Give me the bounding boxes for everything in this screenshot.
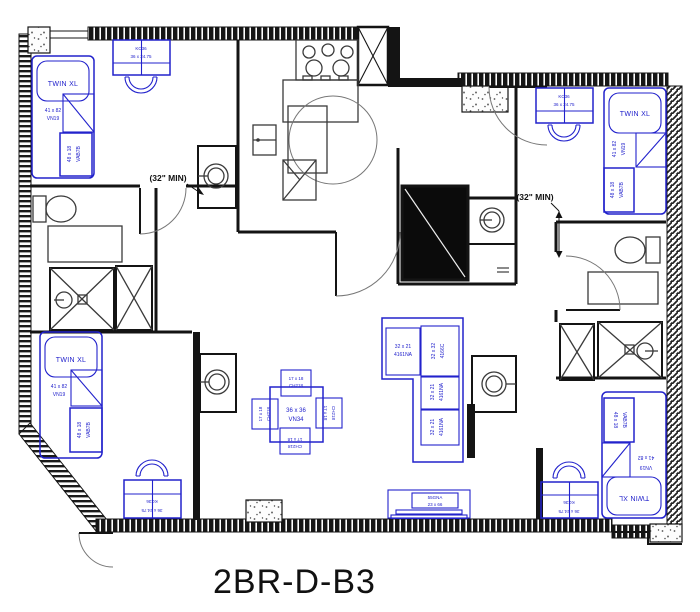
sofa-seat-code-label: 4161NA (394, 352, 413, 358)
chair-size-label: 17 x 18 (323, 406, 328, 421)
column-top-left (28, 27, 50, 53)
sofa-seat-size-label: 32 x 21 (395, 344, 412, 350)
toilet-tank (646, 237, 660, 263)
top-wall-left (88, 27, 358, 40)
right-exterior-wall (667, 86, 682, 538)
dresser-size-label: 48 x 18 (67, 146, 73, 163)
angled-exterior-wall (19, 423, 107, 531)
vanity (48, 226, 122, 262)
bed-code-label: VN19 (640, 464, 653, 470)
chair-size-label: 17 x 18 (258, 406, 263, 421)
burner (322, 44, 334, 56)
sofa-seat-code-label: 4161NA (439, 382, 445, 401)
desk-chair (553, 462, 585, 478)
dining-chair (252, 399, 278, 429)
chair-code-label: CH218 (266, 407, 271, 422)
kitchen-island (288, 106, 327, 173)
toilet-tank (33, 196, 46, 222)
wall-post (388, 27, 400, 85)
dining-set: 36 x 36 VN34 17 x 18 CH218 17 x 18 CH218… (252, 370, 342, 454)
column-top-right (462, 86, 508, 112)
sofa-seat-size-label: 32 x 21 (430, 419, 436, 436)
arrowhead (556, 251, 563, 258)
dresser-code-label: VAB7B (621, 412, 627, 428)
table-size-label: 36 x 36 (286, 408, 306, 414)
column-bottom-right (650, 524, 682, 542)
dresser-code-label: VAB7B (76, 145, 82, 161)
bedroom3-wall (193, 332, 200, 520)
desk-chair (136, 460, 168, 476)
plan-title: 2BR-D-B3 (213, 563, 376, 601)
exterior-walls (19, 27, 682, 544)
bed-label: TWIN XL (56, 357, 87, 364)
top-wall-right (458, 73, 668, 86)
desk-size-label: 36 x 24.75 (553, 102, 575, 107)
dining-chair (316, 398, 342, 428)
sofa-outline (382, 318, 463, 462)
bedroom-1: TWIN XL 41 x 82 VN19 48 x 18 VAB7B KC36 … (32, 40, 170, 178)
left-exterior-wall (19, 34, 31, 434)
desk-size-label: 36 x 24.75 (130, 54, 152, 59)
sofa-seat-code-label: 4161NA (439, 417, 445, 436)
desk-size-label: 36 x 24.75 (558, 509, 580, 514)
bed-label: TWIN XL (48, 81, 79, 88)
sofa-corner-code-label: 4166C (440, 343, 446, 358)
turning-circle (289, 96, 377, 184)
dresser-code-label: VAB7B (86, 421, 92, 437)
floor-plan-drawing: TWIN XL 41 x 82 VN19 48 x 18 VAB7B KC36 … (0, 0, 700, 612)
burner (333, 60, 349, 76)
column-bottom-center (246, 500, 282, 522)
floor-plan-page: TWIN XL 41 x 82 VN19 48 x 18 VAB7B KC36 … (0, 0, 700, 612)
chair-code-label: CH218 (331, 406, 336, 421)
interior-walls (30, 40, 666, 520)
desk-chair (125, 77, 157, 93)
toilet-bowl (615, 237, 645, 263)
clearance-note-left: (32" MIN) (149, 173, 186, 183)
sofa-corner-size-label: 32 x 32 (431, 343, 437, 360)
media-shelf (396, 510, 462, 514)
sofa-seat-size-label: 32 x 21 (430, 384, 436, 401)
toilet-bowl (46, 196, 76, 222)
bottom-exterior-wall (96, 519, 612, 532)
burner (306, 60, 322, 76)
dresser-size-label: 48 x 18 (612, 412, 618, 429)
wall-header (388, 78, 462, 87)
media-size-label: 23 x 66 (428, 502, 443, 507)
dresser-code-label: VAB7B (619, 181, 625, 197)
chair-code-label: CH218 (289, 383, 304, 388)
bed-size-label: 41 x 82 (638, 454, 655, 460)
chair-code-label: CH218 (288, 444, 303, 449)
desk-size-label: 36 x 24.75 (141, 508, 163, 513)
desk-code-label: KC36 (135, 46, 147, 51)
clearance-note-right: (32" MIN) (516, 192, 553, 202)
dresser-size-label: 48 x 18 (77, 422, 83, 439)
bed-code-label: VN19 (621, 143, 627, 156)
mechanical-shaft (402, 186, 468, 280)
desk-code-label: KC36 (146, 499, 158, 504)
bedroom-2: TWIN XL 41 x 82 VN19 48 x 18 VAB7B KC36 … (536, 88, 666, 214)
media-code-label: 55GNA (428, 495, 443, 500)
bed-code-label: VN19 (47, 116, 60, 122)
bed-size-label: 41 x 82 (612, 141, 618, 158)
desk-code-label: KC36 (558, 94, 570, 99)
media-shelf (391, 515, 467, 519)
bathroom-right (560, 237, 662, 380)
burner (303, 46, 315, 58)
kitchen (253, 40, 377, 200)
arrowhead (556, 211, 563, 218)
chair-size-label: 17 x 18 (289, 376, 304, 381)
burner (341, 46, 353, 58)
dresser (604, 398, 634, 442)
vanity (588, 272, 658, 304)
table-code-label: VN34 (288, 417, 304, 423)
desk-code-label: KC36 (563, 500, 575, 505)
bathroom-left (33, 196, 152, 330)
bed-code-label: VN19 (53, 392, 66, 398)
bedroom-4: TWIN XL 41 x 82 VN19 48 x 18 VAB7B KC36 … (541, 392, 666, 518)
bed-label: TWIN XL (620, 111, 651, 118)
bed-size-label: 41 x 82 (51, 384, 68, 390)
kitchen-counter (283, 80, 358, 122)
bed-size-label: 41 x 82 (45, 108, 62, 114)
chair-size-label: 17 x 18 (287, 437, 302, 442)
bed-label: TWIN XL (619, 494, 650, 501)
bedroom-3: TWIN XL 41 x 82 VN19 48 x 18 VAB7B KC36 … (40, 332, 181, 518)
living-room: 32 x 21 4161NA 32 x 32 4166C 32 x 21 416… (382, 318, 470, 519)
desk-chair (548, 125, 580, 141)
bedroom4-wall (536, 448, 543, 519)
dresser-size-label: 48 x 18 (610, 182, 616, 199)
